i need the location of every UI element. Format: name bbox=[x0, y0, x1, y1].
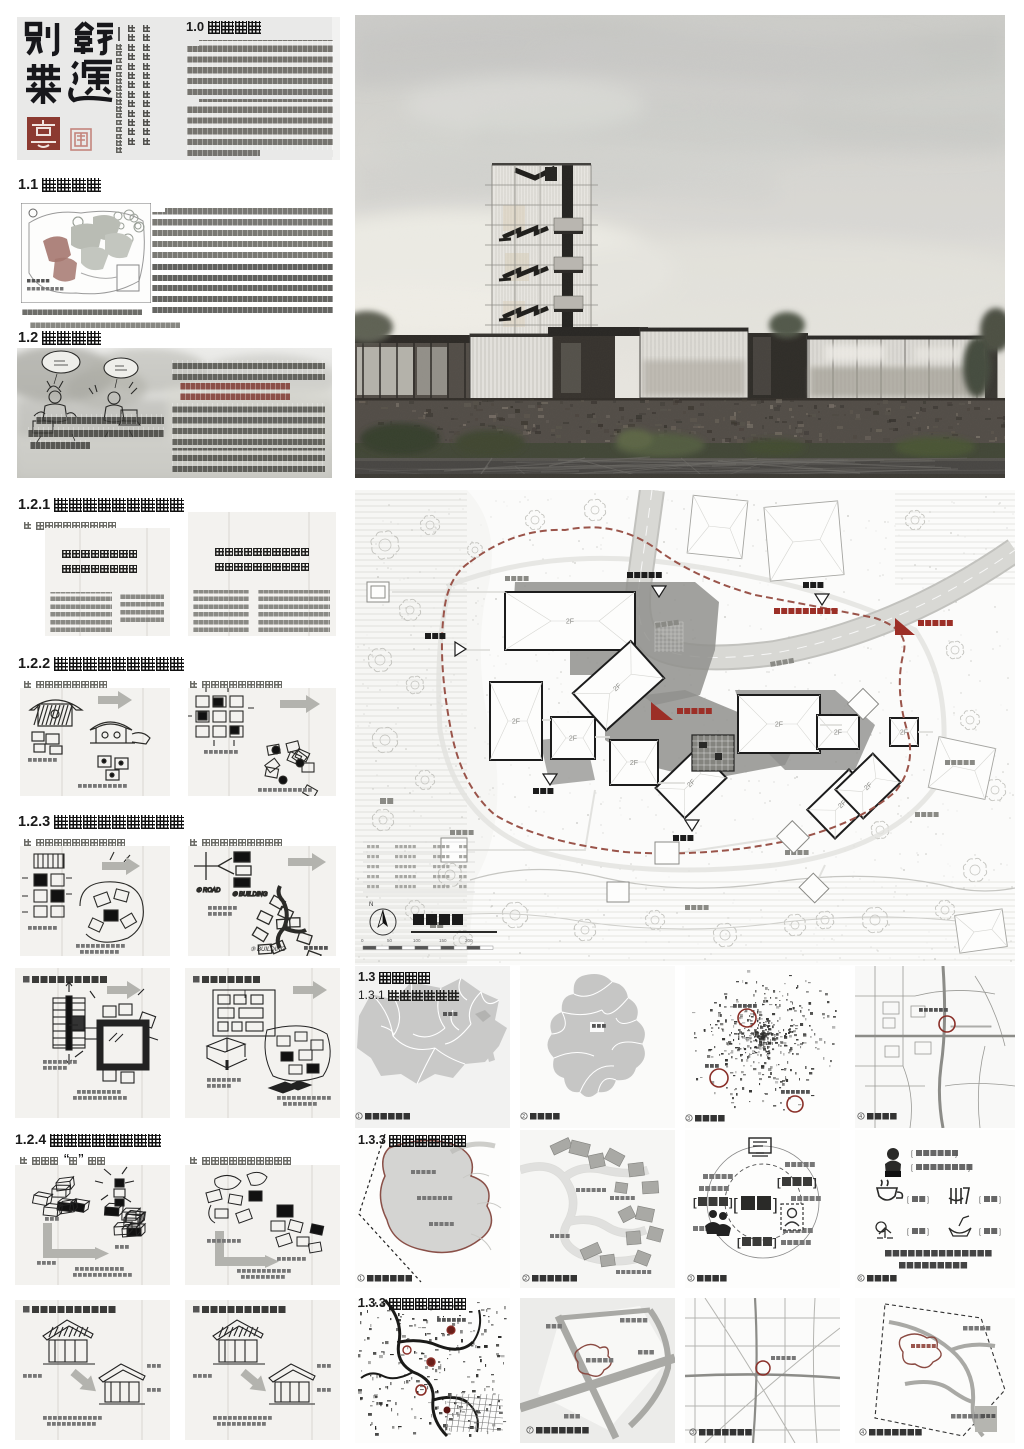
svg-text:6: 6 bbox=[859, 1276, 862, 1282]
svg-text:[: [ bbox=[907, 1197, 909, 1204]
svg-text:② BUILDING: ② BUILDING bbox=[232, 891, 268, 898]
svg-text:]: ] bbox=[955, 1151, 957, 1158]
svg-text:2: 2 bbox=[524, 1276, 527, 1282]
svg-text:]: ] bbox=[813, 1177, 817, 1189]
svg-text:2: 2 bbox=[522, 1114, 525, 1120]
svg-text:[: [ bbox=[693, 1197, 697, 1209]
svg-text:[: [ bbox=[907, 1229, 909, 1236]
svg-text:200: 200 bbox=[465, 938, 473, 943]
svg-text:2F: 2F bbox=[566, 619, 574, 626]
svg-text:[: [ bbox=[777, 1177, 781, 1189]
svg-text:1: 1 bbox=[357, 1114, 360, 1120]
svg-text:]: ] bbox=[999, 1197, 1001, 1204]
svg-text:]: ] bbox=[927, 1197, 929, 1204]
svg-text:]: ] bbox=[968, 1165, 970, 1172]
svg-text:[: [ bbox=[733, 1195, 738, 1214]
svg-text:7: 7 bbox=[528, 1428, 531, 1434]
svg-text:2F: 2F bbox=[834, 730, 842, 737]
svg-text:[: [ bbox=[911, 1151, 913, 1158]
svg-text:]: ] bbox=[927, 1229, 929, 1236]
svg-text:50: 50 bbox=[387, 938, 393, 943]
svg-text:150: 150 bbox=[439, 938, 447, 943]
svg-text:3: 3 bbox=[691, 1430, 694, 1436]
svg-text:[: [ bbox=[979, 1197, 981, 1204]
svg-text:]: ] bbox=[999, 1229, 1001, 1236]
svg-text:[: [ bbox=[979, 1229, 981, 1236]
svg-text:]: ] bbox=[773, 1237, 777, 1249]
svg-text:3: 3 bbox=[687, 1116, 690, 1122]
svg-text:① ROAD: ① ROAD bbox=[196, 887, 221, 894]
svg-text:4: 4 bbox=[861, 1430, 864, 1436]
svg-text:100: 100 bbox=[413, 938, 421, 943]
svg-text:1: 1 bbox=[359, 1276, 362, 1282]
svg-text:[: [ bbox=[911, 1165, 913, 1172]
svg-text:N: N bbox=[369, 902, 373, 908]
svg-text:2F: 2F bbox=[630, 760, 638, 767]
svg-text:]: ] bbox=[729, 1197, 733, 1209]
svg-text:4: 4 bbox=[859, 1114, 862, 1120]
svg-text:③ BUILDING: ③ BUILDING bbox=[250, 946, 286, 953]
svg-text:]: ] bbox=[773, 1195, 778, 1214]
svg-text:2F: 2F bbox=[775, 722, 783, 729]
svg-text:3: 3 bbox=[689, 1276, 692, 1282]
svg-text:[: [ bbox=[737, 1237, 741, 1249]
svg-text:2F: 2F bbox=[512, 719, 520, 726]
svg-text:2F: 2F bbox=[569, 736, 577, 743]
